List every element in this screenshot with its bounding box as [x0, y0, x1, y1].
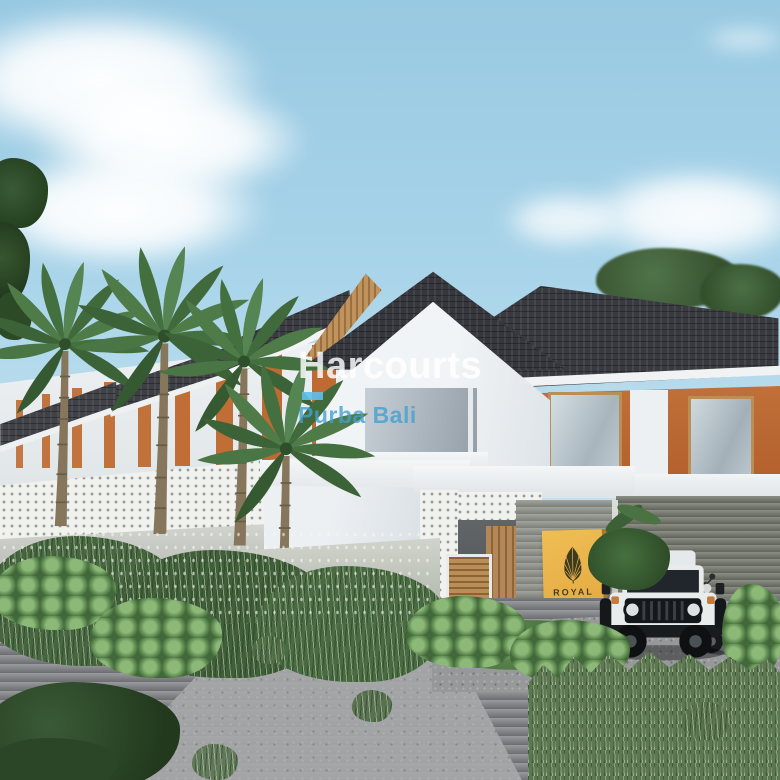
grass-tuft-3 [192, 744, 238, 780]
cloud-5 [700, 25, 780, 53]
roundleaf-shrub-3 [406, 596, 526, 668]
sign-title: ROYAL [553, 586, 594, 597]
watermark-region: Purba Bali [298, 403, 482, 427]
palm-leaf-icon [557, 543, 588, 584]
roundleaf-shrub-2 [90, 598, 222, 678]
grass-tuft-2 [352, 690, 392, 722]
cloud-6 [500, 190, 630, 250]
watermark-accent-bar [302, 392, 323, 400]
grass-tuft-4 [682, 702, 730, 740]
watermark: Harcourts Purba Bali [298, 346, 482, 427]
jeep-side-plant [588, 528, 670, 590]
watermark-brand: Harcourts [298, 346, 482, 386]
grass-tuft-1 [252, 636, 286, 664]
architectural-rendering: ROYAL RESIDENCE [0, 0, 780, 780]
right-house-pillar [630, 390, 668, 484]
